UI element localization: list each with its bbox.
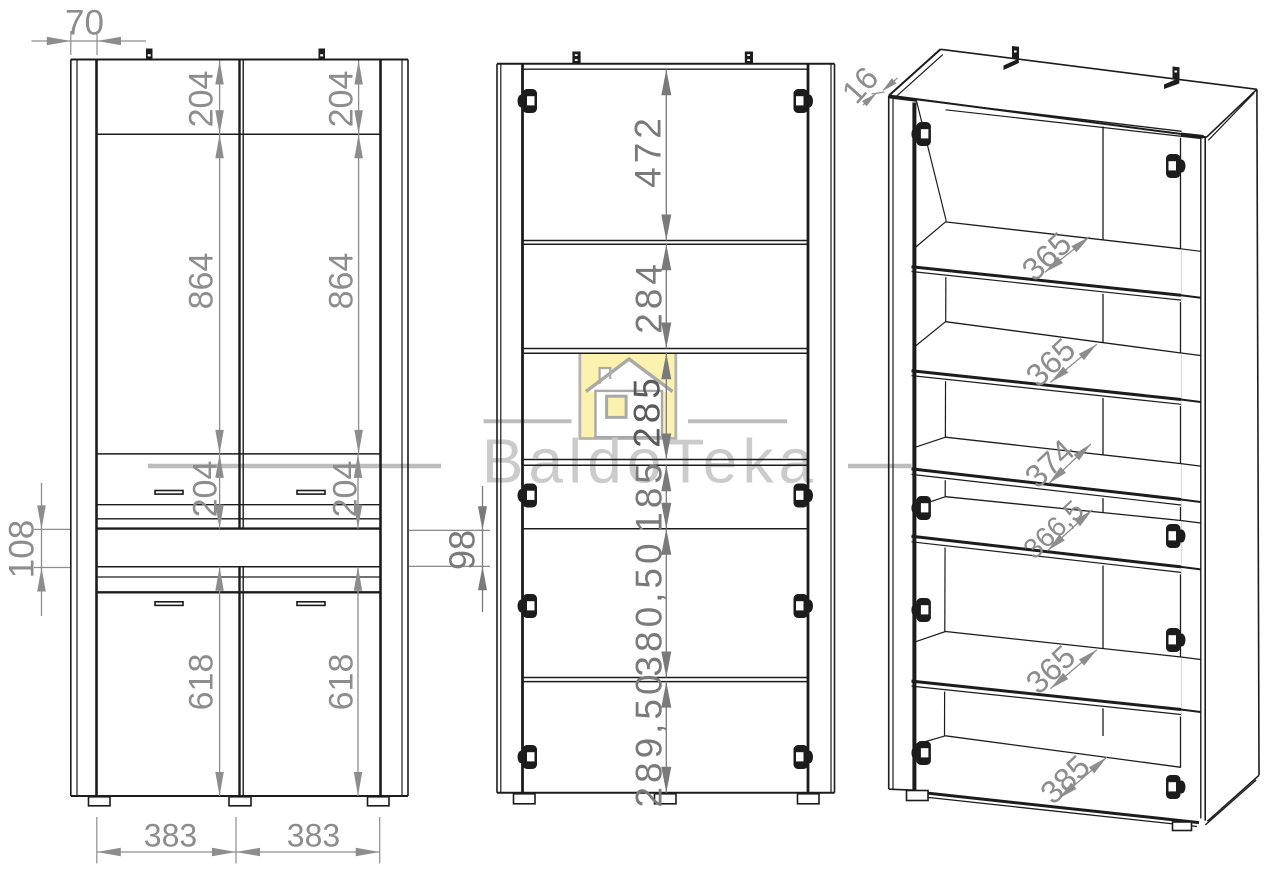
svg-text:289,50: 289,50 [629, 670, 670, 807]
svg-text:864: 864 [322, 253, 360, 310]
svg-text:472: 472 [628, 114, 669, 188]
svg-text:284: 284 [629, 260, 670, 334]
svg-text:618: 618 [182, 654, 220, 711]
svg-text:204: 204 [322, 71, 360, 128]
svg-text:285: 285 [627, 374, 668, 448]
svg-text:98: 98 [442, 530, 483, 570]
svg-text:204: 204 [182, 71, 220, 128]
svg-text:383: 383 [144, 818, 197, 854]
svg-text:864: 864 [182, 253, 220, 310]
svg-text:185: 185 [629, 459, 670, 533]
svg-text:70: 70 [65, 3, 104, 42]
svg-text:618: 618 [322, 654, 360, 711]
svg-text:108: 108 [2, 520, 41, 578]
svg-text:204: 204 [326, 461, 364, 518]
svg-text:383: 383 [287, 818, 340, 854]
svg-text:380,50: 380,50 [629, 539, 670, 676]
svg-text:204: 204 [186, 461, 224, 518]
